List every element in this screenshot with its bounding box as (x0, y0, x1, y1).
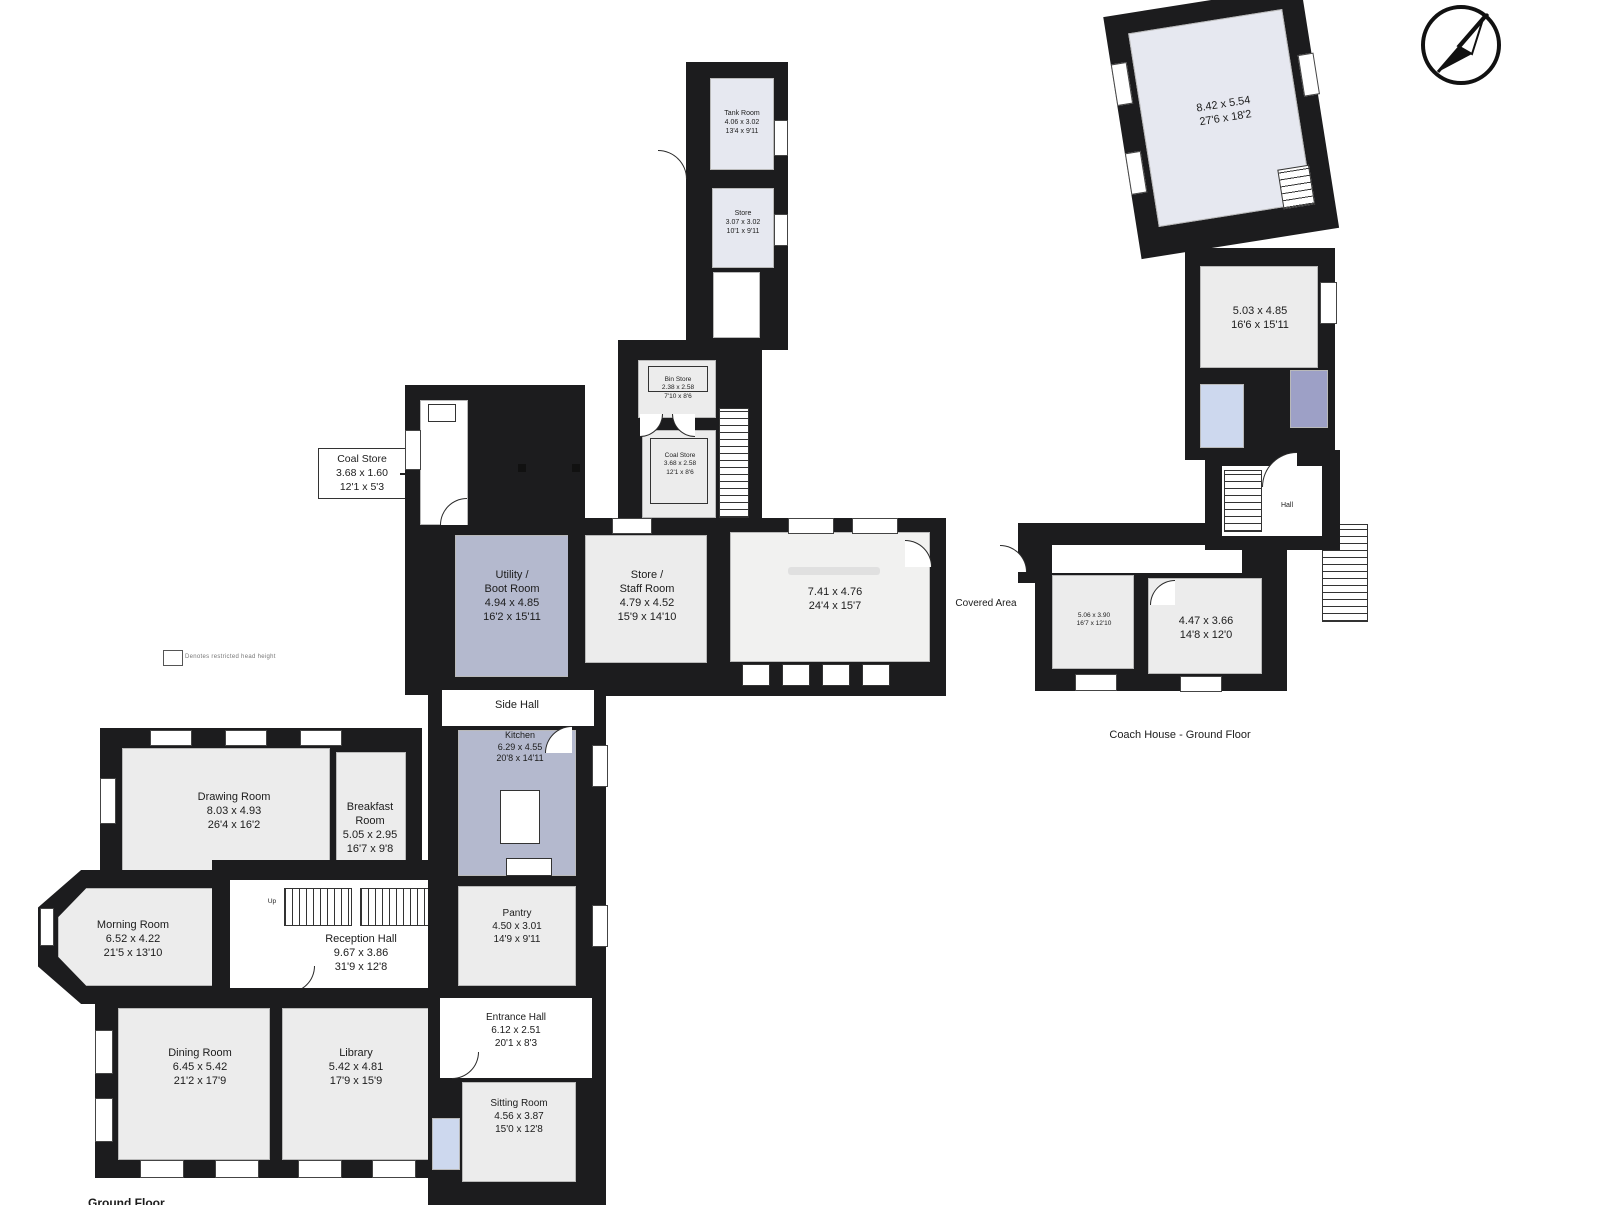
faded-room-name (788, 567, 880, 575)
room-dim-metric: 5.06 x 3.90 (1056, 612, 1132, 620)
label-text: Hall (1262, 502, 1312, 511)
window (150, 730, 192, 746)
callout-dim-metric: 3.68 x 1.60 (323, 466, 401, 480)
covered-area-label: Covered Area (938, 598, 1034, 611)
corridor (713, 272, 760, 338)
window (300, 730, 342, 746)
bay-window (742, 664, 770, 686)
window (100, 778, 116, 824)
bay-window (782, 664, 810, 686)
room-label-coach-small-left: 5.06 x 3.90 16'7 x 12'10 (1056, 612, 1132, 629)
coal-store-callout: Coal Store 3.68 x 1.60 12'1 x 5'3 (318, 448, 406, 499)
room-label-utility-boot: Utility / Boot Room 4.94 x 4.85 16'2 x 1… (448, 568, 576, 624)
room-name: Pantry (462, 908, 572, 921)
toilet-fixture (428, 404, 456, 422)
room-name: Store (708, 210, 778, 219)
door-arc (658, 150, 687, 179)
window (592, 905, 608, 947)
room-name: Utility / Boot Room (448, 568, 576, 596)
room-name: Dining Room (134, 1046, 266, 1060)
window (140, 1160, 184, 1178)
room-name: Drawing Room (168, 790, 300, 804)
room-dim-imperial: 16'2 x 15'11 (448, 610, 576, 624)
room-label-main: 7.41 x 4.76 24'4 x 15'7 (775, 585, 895, 613)
room-dim-imperial: 10'1 x 9'11 (708, 228, 778, 237)
window (95, 1030, 113, 1074)
room-label-drawing: Drawing Room 8.03 x 4.93 26'4 x 16'2 (168, 790, 300, 832)
room-label-store-staff: Store / Staff Room 4.79 x 4.52 15'9 x 14… (586, 568, 708, 624)
callout-dim-imperial: 12'1 x 5'3 (323, 480, 401, 494)
room-dim-imperial: 14'8 x 12'0 (1152, 628, 1260, 642)
room-label-reception: Reception Hall 9.67 x 3.86 31'9 x 12'8 (296, 932, 426, 974)
kitchen-island (500, 790, 540, 844)
room-dim-imperial: 24'4 x 15'7 (775, 599, 895, 613)
room-label-dining: Dining Room 6.45 x 5.42 21'2 x 17'9 (134, 1046, 266, 1088)
room-dim-imperial: 26'4 x 16'2 (168, 818, 300, 832)
kitchen-appliances (506, 858, 552, 876)
window (225, 730, 267, 746)
room-dim-metric: 4.50 x 3.01 (462, 921, 572, 934)
room-dim-imperial: 17'9 x 15'9 (290, 1074, 422, 1088)
window (405, 430, 421, 470)
room-name: Reception Hall (296, 932, 426, 946)
room-name: Entrance Hall (446, 1012, 586, 1025)
window (592, 745, 608, 787)
room-name: Sitting Room (462, 1098, 576, 1111)
window (852, 518, 898, 534)
room-dim-metric: 6.12 x 2.51 (446, 1025, 586, 1038)
window (612, 518, 652, 534)
room-dim-metric: 7.41 x 4.76 (775, 585, 895, 599)
column-marker (572, 464, 580, 472)
room-dim-imperial: 20'1 x 8'3 (446, 1038, 586, 1051)
room-dim-imperial: 14'9 x 9'11 (462, 934, 572, 947)
room-dim-imperial: 21'2 x 17'9 (134, 1074, 266, 1088)
hall-label: Hall (1262, 502, 1312, 511)
stairs (360, 888, 432, 926)
compass-north-icon (1418, 2, 1504, 88)
room-label-coach-small-right: 4.47 x 3.66 14'8 x 12'0 (1152, 614, 1260, 642)
room-label-bin-store: Bin Store 2.38 x 2.58 7'10 x 8'6 (640, 376, 716, 401)
room-label-sitting: Sitting Room 4.56 x 3.87 15'0 x 12'8 (462, 1098, 576, 1136)
side-hall-label: Side Hall (452, 698, 582, 712)
window (788, 518, 834, 534)
room-label-coach-mid: 5.03 x 4.85 16'6 x 15'11 (1204, 304, 1316, 332)
window (1320, 282, 1337, 324)
up-label: Up (262, 898, 282, 906)
room-dim-imperial: 31'9 x 12'8 (296, 960, 426, 974)
legend-swatch (163, 650, 183, 666)
lobby (432, 1118, 460, 1170)
bathroom (1200, 384, 1244, 448)
room-name: Breakfast Room (322, 800, 418, 828)
room-label-entrance: Entrance Hall 6.12 x 2.51 20'1 x 8'3 (446, 1012, 586, 1050)
callout-name: Coal Store (323, 452, 401, 466)
room-dim-imperial: 7'10 x 8'6 (640, 393, 716, 401)
room-name: Tank Room (706, 110, 778, 119)
room-label-store-upper: Store 3.07 x 3.02 10'1 x 9'11 (708, 210, 778, 237)
label-text: Covered Area (938, 598, 1034, 611)
room-dim-metric: 4.56 x 3.87 (462, 1111, 576, 1124)
coach-house-caption: Coach House - Ground Floor (1050, 728, 1310, 742)
window (40, 908, 54, 946)
room-dim-metric: 8.03 x 4.93 (168, 804, 300, 818)
room-dim-metric: 4.06 x 3.02 (706, 119, 778, 128)
stairs (284, 888, 352, 926)
label-text: Coach House - Ground Floor (1050, 728, 1310, 742)
label-text: Denotes restricted head height (185, 654, 276, 660)
room-label-morning: Morning Room 6.52 x 4.22 21'5 x 13'10 (68, 918, 198, 960)
window (298, 1160, 342, 1178)
room-dim-metric: 5.03 x 4.85 (1204, 304, 1316, 318)
room-dim-metric: 3.68 x 2.58 (642, 460, 718, 468)
room-dim-imperial: 20'8 x 14'11 (470, 753, 570, 765)
stairs (719, 408, 749, 518)
room-dim-imperial: 16'7 x 12'10 (1056, 620, 1132, 628)
room-dim-imperial: 15'9 x 14'10 (586, 610, 708, 624)
coach-house-upper-block: 8.42 x 5.54 27'6 x 18'2 (1101, 0, 1356, 272)
window (1075, 674, 1117, 691)
bay-window (822, 664, 850, 686)
room-label-library: Library 5.42 x 4.81 17'9 x 15'9 (290, 1046, 422, 1088)
room-dim-metric: 4.79 x 4.52 (586, 596, 708, 610)
room-name: Bin Store (640, 376, 716, 384)
room-dim-metric: 5.05 x 2.95 (322, 828, 418, 842)
room-dim-imperial: 15'0 x 12'8 (462, 1124, 576, 1137)
room-name: Coal Store (642, 452, 718, 460)
room-dim-imperial: 12'1 x 8'6 (642, 469, 718, 477)
room-dim-metric: 6.52 x 4.22 (68, 932, 198, 946)
room-dim-imperial: 16'7 x 9'8 (322, 842, 418, 856)
room-name: Morning Room (68, 918, 198, 932)
room-dim-metric: 6.45 x 5.42 (134, 1060, 266, 1074)
column-marker (518, 464, 526, 472)
room-dim-imperial: 21'5 x 13'10 (68, 946, 198, 960)
window (215, 1160, 259, 1178)
room-dim-metric: 3.07 x 3.02 (708, 219, 778, 228)
room-name: Store / Staff Room (586, 568, 708, 596)
room-label-pantry: Pantry 4.50 x 3.01 14'9 x 9'11 (462, 908, 572, 946)
room-label-coal-store: Coal Store 3.68 x 2.58 12'1 x 8'6 (642, 452, 718, 477)
label-text: Up (262, 898, 282, 906)
room-dim-metric: 2.38 x 2.58 (640, 384, 716, 392)
room-dim-metric: 4.94 x 4.85 (448, 596, 576, 610)
ground-floor-caption: Ground Floor (88, 1196, 165, 1205)
room-name: Library (290, 1046, 422, 1060)
room-label-tank-room: Tank Room 4.06 x 3.02 13'4 x 9'11 (706, 110, 778, 137)
room-dim-imperial: 13'4 x 9'11 (706, 128, 778, 137)
small-room (1290, 370, 1328, 428)
stairs (1277, 165, 1315, 210)
legend-note: Denotes restricted head height (185, 654, 276, 660)
room-label-breakfast: Breakfast Room 5.05 x 2.95 16'7 x 9'8 (322, 800, 418, 856)
room-dim-imperial: 16'6 x 15'11 (1204, 318, 1316, 332)
label-text: Ground Floor (88, 1196, 165, 1205)
stairs (1224, 470, 1262, 532)
floor-plan-canvas: Tank Room 4.06 x 3.02 13'4 x 9'11 Store … (0, 0, 1606, 1205)
room-dim-metric: 9.67 x 3.86 (296, 946, 426, 960)
window (95, 1098, 113, 1142)
label-text: Side Hall (452, 698, 582, 712)
room-dim-metric: 5.42 x 4.81 (290, 1060, 422, 1074)
bay-window (862, 664, 890, 686)
room-dim-metric: 4.47 x 3.66 (1152, 614, 1260, 628)
window (1180, 676, 1222, 692)
window (372, 1160, 416, 1178)
